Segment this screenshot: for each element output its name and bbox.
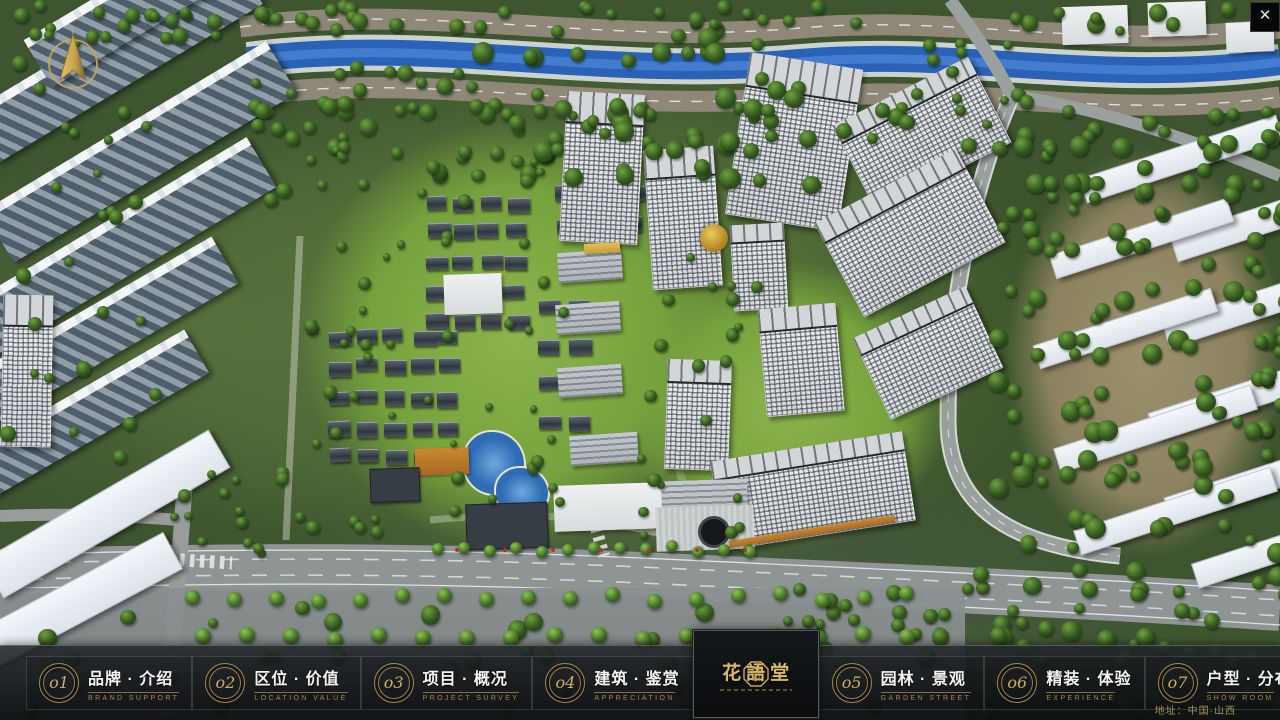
tree bbox=[614, 121, 634, 141]
nav-number: o4 bbox=[555, 673, 575, 692]
tree bbox=[416, 77, 427, 88]
tree bbox=[923, 609, 937, 623]
tree bbox=[1007, 409, 1021, 423]
street-tree bbox=[605, 587, 620, 602]
tree bbox=[490, 146, 505, 161]
tree bbox=[149, 388, 162, 401]
tree bbox=[1267, 543, 1280, 563]
tree bbox=[1061, 621, 1080, 640]
tree bbox=[1038, 621, 1053, 636]
townhouse-roof bbox=[538, 376, 559, 391]
close-button[interactable]: ✕ bbox=[1250, 2, 1280, 32]
street-tree bbox=[647, 594, 662, 609]
tree bbox=[1212, 407, 1225, 420]
tree bbox=[989, 329, 1007, 347]
street-tree bbox=[855, 626, 871, 642]
tree bbox=[1194, 476, 1213, 495]
tree bbox=[1072, 563, 1087, 578]
tree bbox=[997, 222, 1009, 234]
tree bbox=[533, 104, 547, 118]
townhouse-roof bbox=[568, 415, 590, 432]
tree bbox=[253, 543, 263, 553]
tree bbox=[1173, 585, 1185, 597]
tree bbox=[271, 122, 285, 136]
tree bbox=[1094, 386, 1109, 401]
tree bbox=[1076, 333, 1090, 347]
tree bbox=[1070, 192, 1083, 205]
tree bbox=[1243, 289, 1257, 303]
tree bbox=[337, 96, 353, 112]
townhouse-roof bbox=[413, 331, 436, 346]
tree bbox=[251, 119, 264, 132]
tree bbox=[346, 326, 356, 336]
tree bbox=[1045, 144, 1056, 155]
tree bbox=[767, 81, 786, 100]
tree bbox=[276, 183, 292, 199]
nav-label-zh: 品牌 · 介绍 bbox=[88, 665, 173, 689]
tree bbox=[453, 68, 464, 79]
tree bbox=[417, 188, 427, 198]
tree bbox=[1114, 291, 1134, 311]
tree bbox=[354, 522, 366, 534]
street-tree bbox=[899, 629, 915, 645]
block-shape bbox=[443, 273, 502, 315]
block-shape bbox=[553, 482, 665, 532]
tree bbox=[295, 512, 305, 522]
nav-item-decor-experience[interactable]: o6 精装 · 体验 EXPERIENCE bbox=[984, 656, 1144, 710]
tree bbox=[1142, 344, 1162, 364]
tree bbox=[384, 66, 396, 78]
townhouse-roof bbox=[437, 391, 458, 407]
townhouse-roof bbox=[538, 340, 559, 355]
tree bbox=[388, 412, 395, 419]
nav-label-en: BRAND SUPPORT bbox=[88, 692, 179, 702]
townhouse-roof bbox=[508, 197, 531, 213]
tree bbox=[1044, 245, 1057, 258]
townhouse-roof bbox=[538, 415, 561, 429]
nav-label-zh: 区位 · 价值 bbox=[254, 665, 339, 689]
tower-shape bbox=[643, 146, 723, 291]
tree bbox=[426, 160, 440, 174]
tree bbox=[0, 426, 16, 442]
tree bbox=[681, 46, 695, 60]
nav-number: o2 bbox=[215, 673, 235, 692]
flower-bed bbox=[599, 548, 603, 552]
tree bbox=[451, 471, 465, 485]
nav-label-zh: 建筑 · 鉴赏 bbox=[594, 665, 679, 689]
tree bbox=[235, 507, 243, 515]
tree bbox=[1252, 179, 1263, 190]
tree bbox=[442, 330, 453, 341]
street-tree bbox=[353, 593, 368, 608]
mid-shape bbox=[557, 249, 623, 283]
tree bbox=[709, 19, 719, 29]
tree bbox=[1078, 450, 1097, 469]
tree bbox=[1007, 605, 1019, 617]
nav-label-en: SHOW ROOM bbox=[1207, 692, 1274, 702]
tree bbox=[135, 316, 146, 327]
townhouse-roof bbox=[482, 254, 503, 269]
tree bbox=[97, 306, 109, 318]
tree bbox=[1124, 453, 1136, 465]
townhouse-roof bbox=[503, 284, 525, 299]
tree bbox=[530, 405, 537, 412]
tree bbox=[1261, 106, 1273, 118]
tree bbox=[564, 168, 583, 187]
tree bbox=[1038, 456, 1051, 469]
tree bbox=[504, 319, 514, 329]
flower-bed bbox=[503, 548, 507, 552]
tree bbox=[802, 176, 820, 194]
tree bbox=[1021, 15, 1038, 32]
flower-bed bbox=[455, 548, 459, 552]
tree bbox=[69, 427, 79, 437]
tree bbox=[1126, 562, 1145, 581]
tree bbox=[1258, 207, 1270, 219]
tree bbox=[1193, 457, 1213, 477]
street-tree bbox=[536, 546, 548, 558]
tree bbox=[923, 39, 936, 52]
street-tree bbox=[283, 628, 299, 644]
nav-label-zh: 项目 · 概况 bbox=[423, 665, 508, 689]
townhouse-roof bbox=[411, 358, 434, 373]
tree bbox=[694, 159, 710, 175]
tree bbox=[408, 102, 419, 113]
tree bbox=[338, 141, 350, 153]
compass-icon bbox=[38, 22, 108, 102]
tree bbox=[312, 439, 321, 448]
tree bbox=[359, 118, 377, 136]
tree bbox=[531, 455, 544, 468]
tree bbox=[270, 13, 283, 26]
tree bbox=[1020, 535, 1038, 553]
aerial-masterplan-view: ✕ o1 品牌 · 介绍 BRAND SUPPORT o2 区位 · 价值 LO… bbox=[0, 0, 1280, 720]
tree bbox=[160, 32, 172, 44]
tree bbox=[733, 493, 743, 503]
tree bbox=[1026, 174, 1046, 194]
tree bbox=[419, 104, 435, 120]
tree bbox=[989, 478, 1009, 498]
tree bbox=[113, 450, 127, 464]
tree bbox=[236, 517, 247, 528]
tree bbox=[654, 339, 668, 353]
tree bbox=[118, 106, 131, 119]
tree bbox=[647, 473, 661, 487]
townhouse-roof bbox=[481, 314, 501, 329]
nav-badge-05: o5 bbox=[832, 663, 872, 703]
tree bbox=[330, 427, 342, 439]
tree bbox=[1158, 126, 1170, 138]
nav-badge-06: o6 bbox=[997, 663, 1037, 703]
tree bbox=[717, 0, 731, 14]
tree bbox=[458, 194, 471, 207]
street-tree bbox=[371, 627, 387, 643]
nav-number: o7 bbox=[1168, 673, 1188, 692]
tree bbox=[1232, 416, 1243, 427]
tree bbox=[621, 54, 636, 69]
tree bbox=[243, 538, 253, 548]
tree bbox=[424, 396, 432, 404]
tower-shape bbox=[1, 295, 54, 448]
flower-bed bbox=[551, 548, 555, 552]
tree bbox=[1204, 613, 1220, 629]
tree bbox=[254, 6, 270, 22]
tree bbox=[1006, 206, 1020, 220]
tree bbox=[498, 6, 511, 19]
street-tree bbox=[718, 544, 730, 556]
tree bbox=[251, 78, 261, 88]
tree bbox=[973, 566, 989, 582]
flower-bed bbox=[695, 548, 699, 552]
street-tree bbox=[195, 628, 211, 644]
tree bbox=[976, 581, 990, 595]
tree bbox=[1221, 2, 1235, 16]
tree bbox=[757, 14, 769, 26]
tree bbox=[488, 494, 498, 504]
tree bbox=[743, 143, 759, 159]
townhouse-roof bbox=[455, 315, 475, 330]
tree bbox=[353, 83, 367, 97]
tree bbox=[358, 277, 371, 290]
tree bbox=[1010, 12, 1023, 25]
tree bbox=[197, 537, 206, 546]
tree bbox=[956, 47, 967, 58]
street-tree bbox=[510, 542, 522, 554]
tree bbox=[255, 103, 271, 119]
tower-shape bbox=[757, 303, 844, 417]
nav-badge-04: o4 bbox=[545, 663, 585, 703]
mid-shape bbox=[557, 364, 623, 398]
tree bbox=[330, 23, 344, 37]
tree bbox=[104, 135, 113, 144]
tree bbox=[551, 25, 564, 38]
project-address: 地址：中国·山西 bbox=[1155, 702, 1236, 717]
townhouse-roof bbox=[454, 224, 474, 241]
tree bbox=[802, 615, 815, 628]
tree bbox=[441, 237, 451, 247]
bus-shape bbox=[584, 242, 620, 254]
townhouse-roof bbox=[438, 422, 458, 437]
tree bbox=[1274, 346, 1280, 357]
nav-item-location-value[interactable]: o2 区位 · 价值 LOCATION VALUE bbox=[192, 656, 360, 710]
tree bbox=[358, 179, 369, 190]
tree bbox=[472, 42, 494, 64]
townhouse-roof bbox=[505, 256, 527, 270]
tree bbox=[961, 138, 977, 154]
tree bbox=[219, 488, 229, 498]
tree bbox=[436, 78, 454, 96]
tree bbox=[637, 454, 646, 463]
tree bbox=[570, 47, 586, 63]
street-tree bbox=[773, 586, 788, 601]
nav-item-brand-intro[interactable]: o1 品牌 · 介绍 BRAND SUPPORT bbox=[26, 656, 192, 710]
nav-badge-02: o2 bbox=[205, 663, 245, 703]
nav-item-project-survey[interactable]: o3 项目 · 概况 PROJECT SURVEY bbox=[361, 656, 533, 710]
tree bbox=[755, 72, 769, 86]
tree bbox=[141, 121, 152, 132]
townhouse-roof bbox=[505, 223, 526, 238]
nav-label-en: EXPERIENCE bbox=[1046, 692, 1115, 702]
tree bbox=[123, 417, 136, 430]
tree bbox=[1097, 420, 1118, 441]
tree bbox=[1030, 348, 1044, 362]
tree bbox=[799, 130, 817, 148]
tree bbox=[1074, 603, 1085, 614]
nav-item-architecture-appreciation[interactable]: o4 建筑 · 鉴赏 APPRECIATION bbox=[532, 656, 692, 710]
tree bbox=[867, 133, 878, 144]
tree bbox=[708, 282, 717, 291]
townhouse-roof bbox=[413, 421, 433, 436]
tree bbox=[654, 7, 665, 18]
street-tree bbox=[689, 592, 704, 607]
tree bbox=[1129, 471, 1140, 482]
tree bbox=[990, 627, 1007, 644]
tree bbox=[1261, 129, 1276, 144]
nav-label-zh: 精装 · 体验 bbox=[1046, 665, 1131, 689]
tree bbox=[286, 88, 297, 99]
tree bbox=[1000, 96, 1009, 105]
tree bbox=[1020, 95, 1035, 110]
nav-number: o3 bbox=[384, 673, 404, 692]
townhouse-roof bbox=[329, 361, 351, 376]
street-tree bbox=[731, 588, 746, 603]
tree bbox=[359, 306, 368, 315]
tree bbox=[700, 415, 711, 426]
nav-label-zh: 户型 · 分布 bbox=[1207, 665, 1280, 689]
street-tree bbox=[437, 588, 452, 603]
tree bbox=[325, 4, 338, 17]
tree bbox=[149, 11, 159, 21]
tree bbox=[783, 15, 795, 27]
tree bbox=[1145, 282, 1160, 297]
tree bbox=[1268, 567, 1280, 587]
tree bbox=[751, 281, 762, 292]
street-tree bbox=[588, 542, 600, 554]
tree bbox=[334, 68, 347, 81]
tree bbox=[1223, 281, 1244, 302]
tree bbox=[51, 182, 62, 193]
flower-bed bbox=[647, 548, 651, 552]
nav-badge-01: o1 bbox=[39, 663, 79, 703]
flower-bed bbox=[743, 548, 747, 552]
tree bbox=[76, 361, 91, 376]
tree bbox=[1053, 7, 1065, 19]
tree bbox=[383, 253, 391, 261]
project-logo-panel[interactable]: 花語堂 bbox=[693, 630, 819, 718]
dark-shape bbox=[465, 502, 549, 551]
tree bbox=[946, 66, 959, 79]
tree bbox=[1208, 108, 1224, 124]
tree bbox=[1064, 174, 1081, 191]
tree bbox=[1070, 136, 1089, 155]
tree bbox=[178, 489, 192, 503]
tree bbox=[180, 7, 191, 18]
tree bbox=[1149, 4, 1167, 22]
tree bbox=[1049, 231, 1064, 246]
nav-label-zh: 园林 · 景观 bbox=[881, 665, 966, 689]
tree bbox=[172, 28, 187, 43]
tree bbox=[1133, 241, 1145, 253]
tree bbox=[371, 526, 383, 538]
tree bbox=[389, 18, 404, 33]
tree bbox=[44, 373, 54, 383]
tree bbox=[1022, 305, 1035, 318]
townhouse-roof bbox=[385, 360, 406, 375]
logo-caption-line bbox=[720, 689, 792, 691]
tree bbox=[751, 38, 764, 51]
townhouse-roof bbox=[477, 223, 498, 238]
tree bbox=[616, 166, 634, 184]
tree bbox=[850, 17, 862, 29]
tree bbox=[1069, 348, 1081, 360]
tree bbox=[692, 359, 705, 372]
tree bbox=[1227, 108, 1239, 120]
tree bbox=[875, 103, 890, 118]
tree bbox=[1247, 232, 1263, 248]
tree bbox=[12, 56, 27, 71]
tree bbox=[753, 174, 765, 186]
tree bbox=[1168, 442, 1186, 460]
street-tree bbox=[395, 588, 410, 603]
street-tree bbox=[591, 627, 607, 643]
townhouse-roof bbox=[452, 256, 472, 270]
tree bbox=[511, 155, 524, 168]
street-tree bbox=[503, 630, 519, 646]
tree bbox=[645, 143, 663, 161]
tree bbox=[523, 49, 538, 64]
tree bbox=[1112, 138, 1132, 158]
tree bbox=[531, 88, 544, 101]
tree bbox=[1220, 135, 1238, 153]
tree bbox=[165, 13, 179, 27]
tree bbox=[899, 115, 915, 131]
tree bbox=[536, 168, 545, 177]
tree bbox=[1012, 465, 1032, 485]
tree bbox=[397, 65, 414, 82]
townhouse-roof bbox=[427, 196, 447, 210]
townhouse-roof bbox=[426, 313, 449, 330]
tree bbox=[1089, 176, 1104, 191]
tree bbox=[547, 435, 556, 444]
logo-seal-icon bbox=[743, 661, 769, 687]
tree bbox=[1079, 404, 1094, 419]
nav-label-en: LOCATION VALUE bbox=[254, 692, 347, 702]
tower-shape bbox=[664, 359, 732, 471]
townhouse-roof bbox=[384, 423, 406, 437]
mid-shape bbox=[555, 301, 621, 335]
tree bbox=[1044, 176, 1058, 190]
tree bbox=[93, 6, 105, 18]
tree bbox=[633, 104, 647, 118]
street-tree bbox=[521, 590, 536, 605]
tree bbox=[391, 147, 403, 159]
tree bbox=[558, 307, 569, 318]
townhouse-roof bbox=[386, 450, 407, 465]
tree bbox=[640, 531, 648, 539]
tree bbox=[170, 513, 178, 521]
nav-item-garden-landscape[interactable]: o5 园林 · 景观 GARDEN STREET bbox=[819, 656, 985, 710]
tree bbox=[1218, 489, 1233, 504]
tree bbox=[458, 145, 472, 159]
tree bbox=[599, 128, 611, 140]
tree bbox=[962, 583, 974, 595]
tree bbox=[474, 20, 487, 33]
tree bbox=[1195, 375, 1212, 392]
tree bbox=[982, 120, 991, 129]
tree bbox=[761, 104, 774, 117]
tree bbox=[686, 253, 695, 262]
tree bbox=[1104, 472, 1119, 487]
